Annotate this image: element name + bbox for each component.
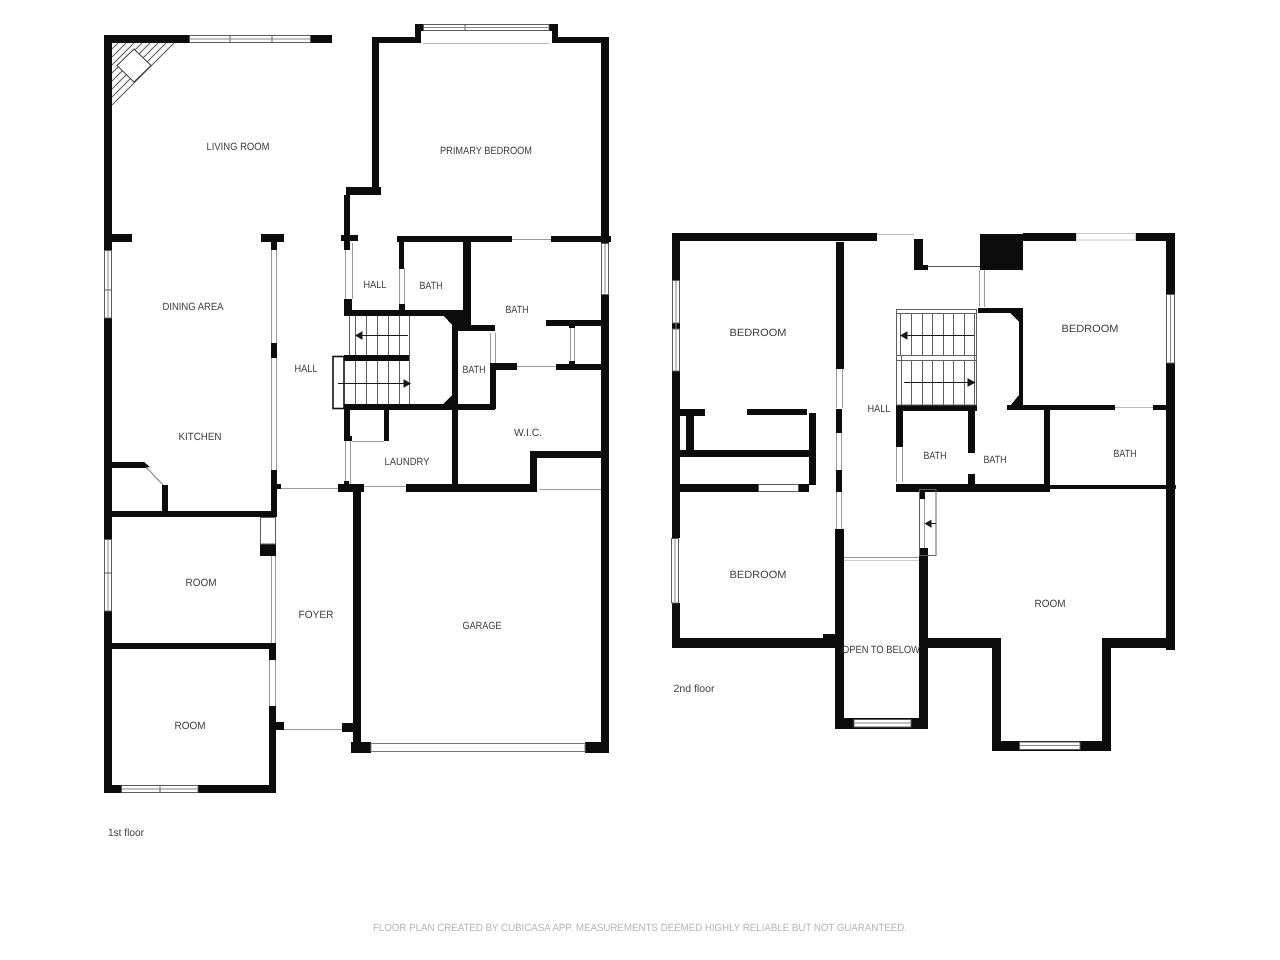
svg-text:HALL: HALL [295,363,318,375]
svg-text:ROOM: ROOM [1035,598,1066,610]
svg-text:HALL: HALL [868,403,891,415]
svg-text:BATH: BATH [463,364,486,376]
svg-text:KITCHEN: KITCHEN [179,431,222,443]
svg-text:BATH: BATH [420,280,443,292]
svg-text:LIVING ROOM: LIVING ROOM [207,141,270,153]
svg-text:BATH: BATH [924,450,947,462]
svg-text:LAUNDRY: LAUNDRY [385,456,430,468]
svg-text:BEDROOM: BEDROOM [1062,323,1119,335]
svg-text:BATH: BATH [984,454,1007,466]
svg-text:HALL: HALL [364,279,387,291]
svg-text:2nd floor: 2nd floor [674,683,715,695]
svg-text:DINING AREA: DINING AREA [163,301,224,313]
svg-text:ROOM: ROOM [186,577,217,589]
svg-text:1st floor: 1st floor [108,827,144,839]
svg-text:BEDROOM: BEDROOM [730,569,787,581]
svg-text:GARAGE: GARAGE [463,620,502,632]
svg-text:OPEN TO BELOW: OPEN TO BELOW [842,644,920,656]
svg-text:PRIMARY BEDROOM: PRIMARY BEDROOM [440,145,532,157]
svg-text:BATH: BATH [506,304,529,316]
svg-text:BATH: BATH [1114,448,1137,460]
svg-text:FLOOR PLAN CREATED BY CUBICASA: FLOOR PLAN CREATED BY CUBICASA APP. MEAS… [373,922,907,934]
svg-text:ROOM: ROOM [175,720,206,732]
svg-text:FOYER: FOYER [299,609,334,621]
svg-text:W.I.C.: W.I.C. [514,427,542,439]
svg-text:BEDROOM: BEDROOM [730,327,787,339]
